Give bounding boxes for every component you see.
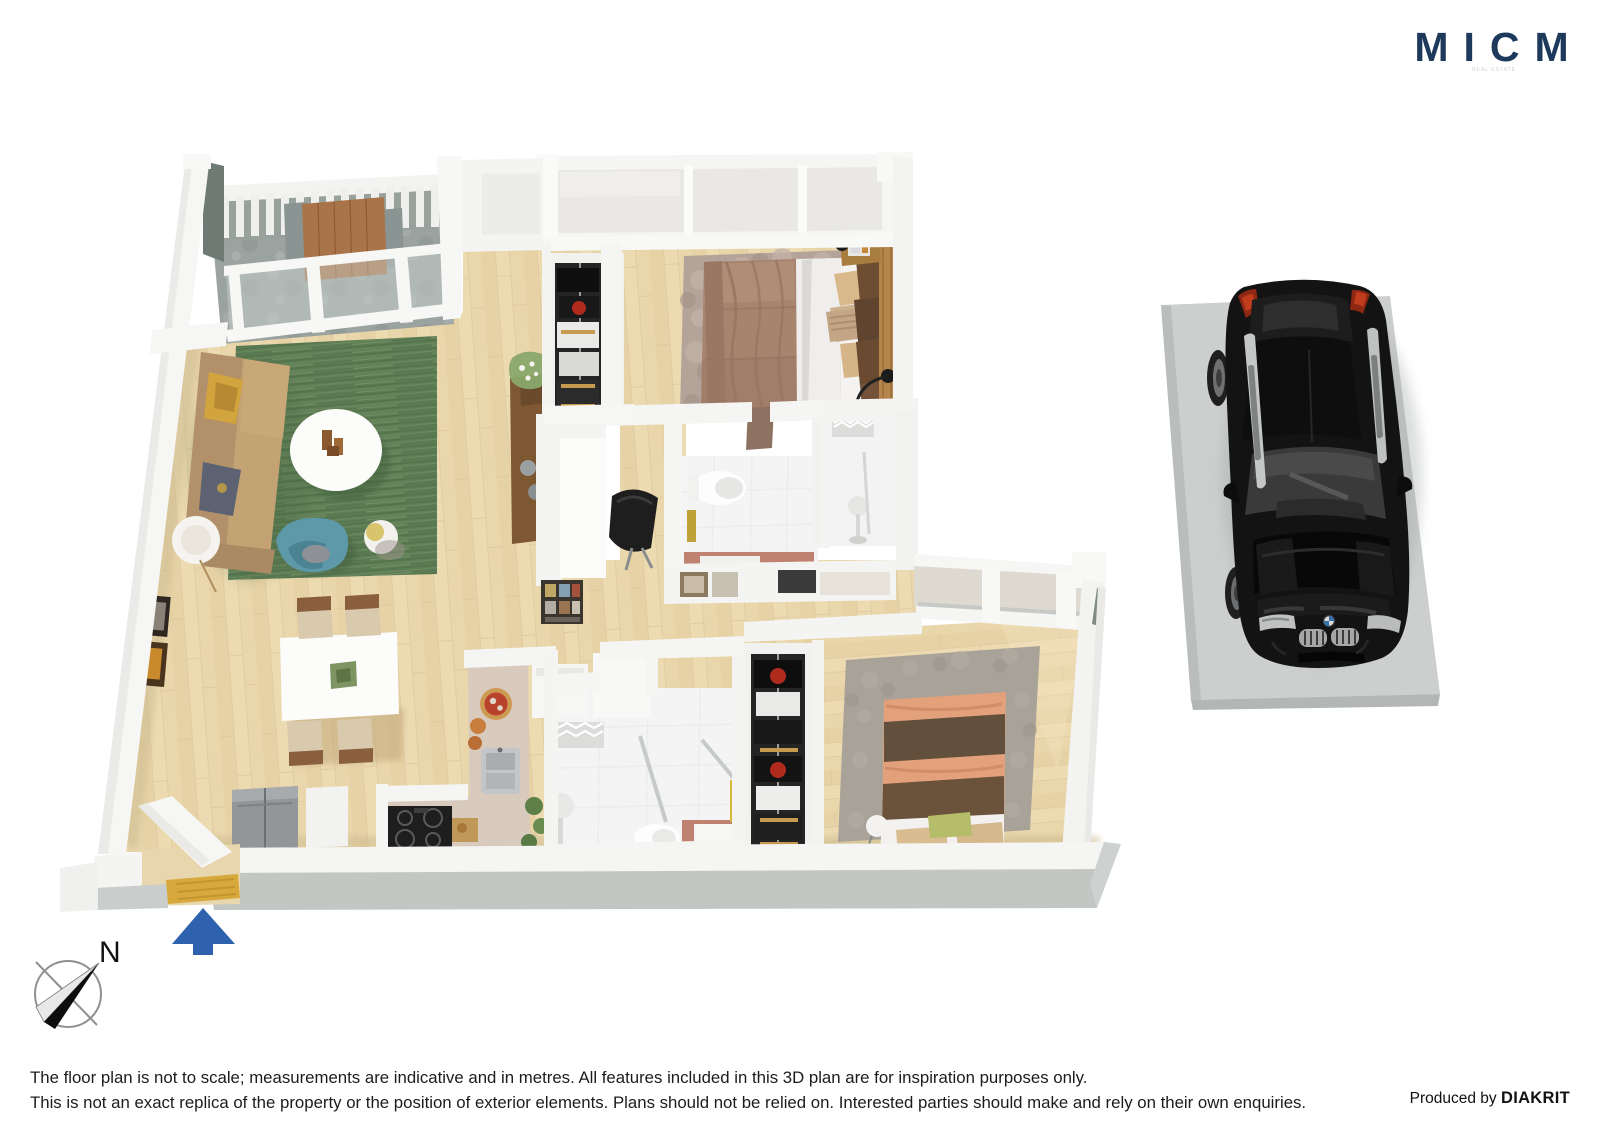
svg-text:N: N: [99, 936, 121, 969]
